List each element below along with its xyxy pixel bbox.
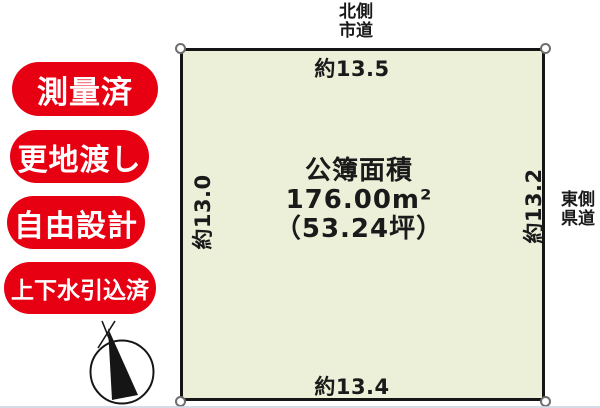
boundary-point-icon	[540, 43, 551, 54]
east-road-line2: 県道	[556, 210, 600, 229]
area-info: 公簿面積 176.00m² （53.24坪）	[180, 157, 538, 244]
east-road-line1: 東側	[556, 191, 600, 210]
north-compass-icon	[78, 318, 170, 408]
badge-surveyed: 測量済	[12, 62, 158, 116]
land-plot-diagram: 測量済 更地渡し 自由設計 上下水引込済 北側 市道 東側 県道 約13.5 約…	[0, 0, 600, 408]
badge-vacant-land-delivery: 更地渡し	[10, 130, 149, 183]
area-tsubo: （53.24坪）	[180, 215, 538, 244]
north-road-line2: 市道	[316, 22, 396, 41]
badge-water-sewer-connected: 上下水引込済	[4, 262, 156, 314]
boundary-point-icon	[175, 396, 186, 407]
north-road-line1: 北側	[316, 3, 396, 22]
area-square-meters: 176.00m²	[180, 186, 538, 215]
dimension-south: 約13.4	[282, 371, 422, 401]
east-road-label: 東側 県道	[556, 191, 600, 229]
boundary-point-icon	[175, 43, 186, 54]
area-title: 公簿面積	[180, 157, 538, 186]
boundary-point-icon	[540, 396, 551, 407]
north-road-label: 北側 市道	[316, 3, 396, 41]
dimension-north: 約13.5	[282, 53, 422, 83]
badge-free-design: 自由設計	[7, 196, 145, 249]
